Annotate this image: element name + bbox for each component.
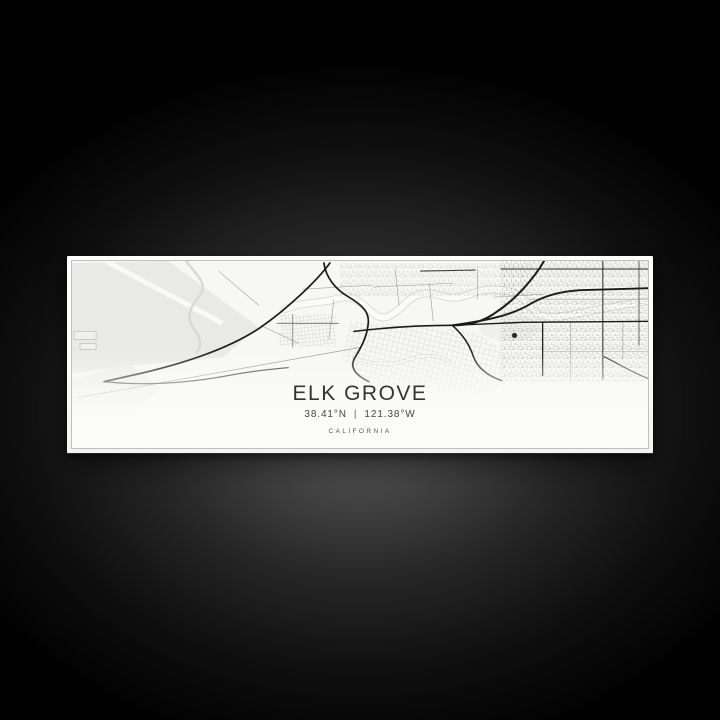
map-print-face: ELK GROVE 38.41°N|121.38°W CALIFORNIA [71, 260, 649, 449]
map-pond [512, 333, 517, 338]
canvas-print: ELK GROVE 38.41°N|121.38°W CALIFORNIA [67, 256, 653, 453]
map-bottom-fade [72, 349, 648, 448]
elk-grove-street-map [72, 261, 648, 448]
photo-backdrop: ELK GROVE 38.41°N|121.38°W CALIFORNIA [0, 0, 720, 720]
